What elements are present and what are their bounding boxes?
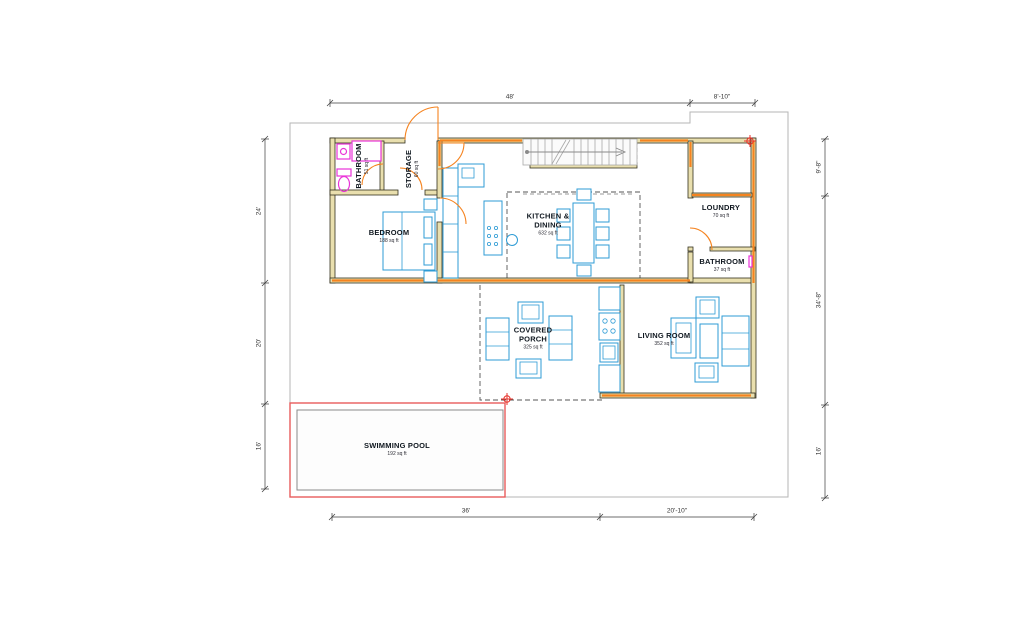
dim-left-24: 24': [256, 207, 263, 215]
bathroom-second-label: BATHROOM 37 sq ft: [699, 257, 744, 273]
dim-left-20: 20': [256, 339, 263, 347]
dim-top-48: 48': [506, 94, 514, 101]
living-room-label: LIVING ROOM 352 sq ft: [619, 331, 709, 347]
bedroom-label: BEDROOM 188 sq ft: [369, 228, 410, 244]
dim-bottom-20-10: 20'-10": [667, 508, 687, 515]
kitchen-dining-label: KITCHEN & DINING 632 sq ft: [519, 212, 577, 237]
dim-right-16: 16': [816, 447, 823, 455]
dim-bottom-36: 36': [462, 508, 470, 515]
dim-right-34-8: 34'-8": [816, 292, 823, 309]
swimming-pool-label: SWIMMING POOL 192 sq ft: [364, 441, 430, 457]
dim-top-8-10: 8'-10": [714, 94, 731, 101]
dim-right-9-8: 9'-8": [816, 161, 823, 174]
bathroom-main-label: BATHROOM 51 sq ft: [354, 143, 370, 188]
loundry-label: LOUNDRY 70 sq ft: [702, 203, 740, 219]
floor-plan-canvas: BATHROOM 51 sq ft STORAGE 60 sq ft BEDRO…: [0, 0, 1024, 640]
dim-left-16: 16': [256, 442, 263, 450]
label-layer: BATHROOM 51 sq ft STORAGE 60 sq ft BEDRO…: [0, 0, 1024, 640]
covered-porch-label: COVERED PORCH 325 sq ft: [506, 326, 560, 351]
storage-label: STORAGE 60 sq ft: [404, 150, 420, 188]
